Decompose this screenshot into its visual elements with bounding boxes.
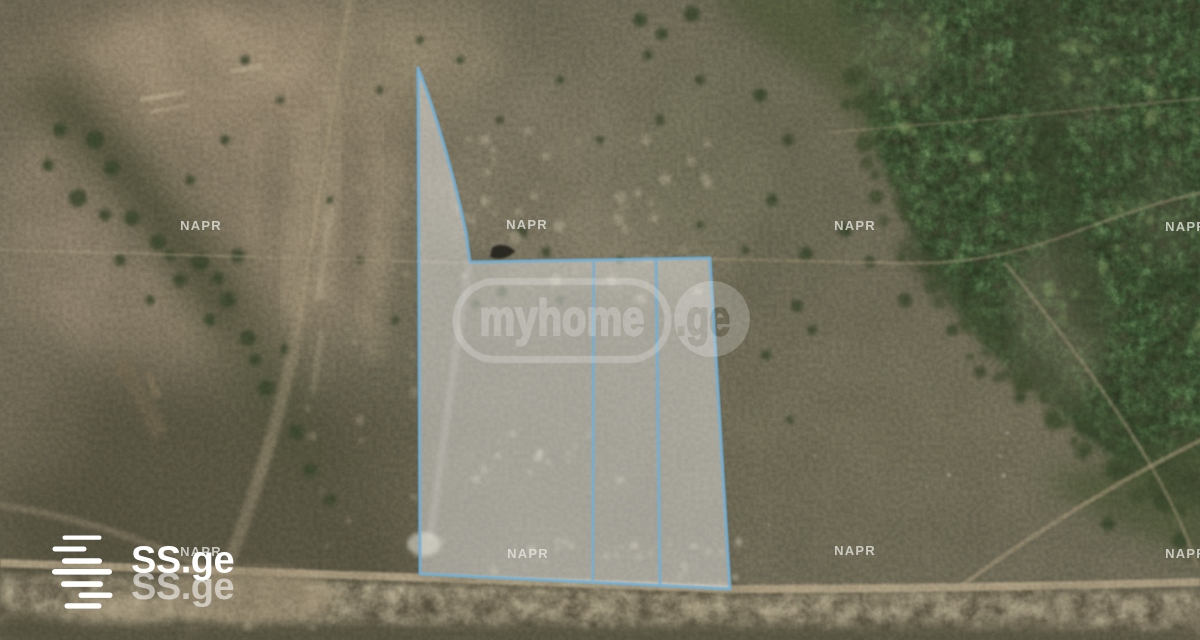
- svg-text:NAPR: NAPR: [1165, 546, 1200, 561]
- svg-text:myhome: myhome: [480, 290, 645, 346]
- svg-text:NAPR: NAPR: [834, 218, 876, 233]
- svg-text:NAPR: NAPR: [506, 217, 548, 232]
- svg-text:NAPR: NAPR: [180, 218, 222, 233]
- svg-text:NAPR: NAPR: [1165, 219, 1200, 234]
- svg-text:SS.ge: SS.ge: [131, 566, 234, 608]
- svg-text:NAPR: NAPR: [834, 543, 876, 558]
- svg-text:NAPR: NAPR: [507, 546, 549, 561]
